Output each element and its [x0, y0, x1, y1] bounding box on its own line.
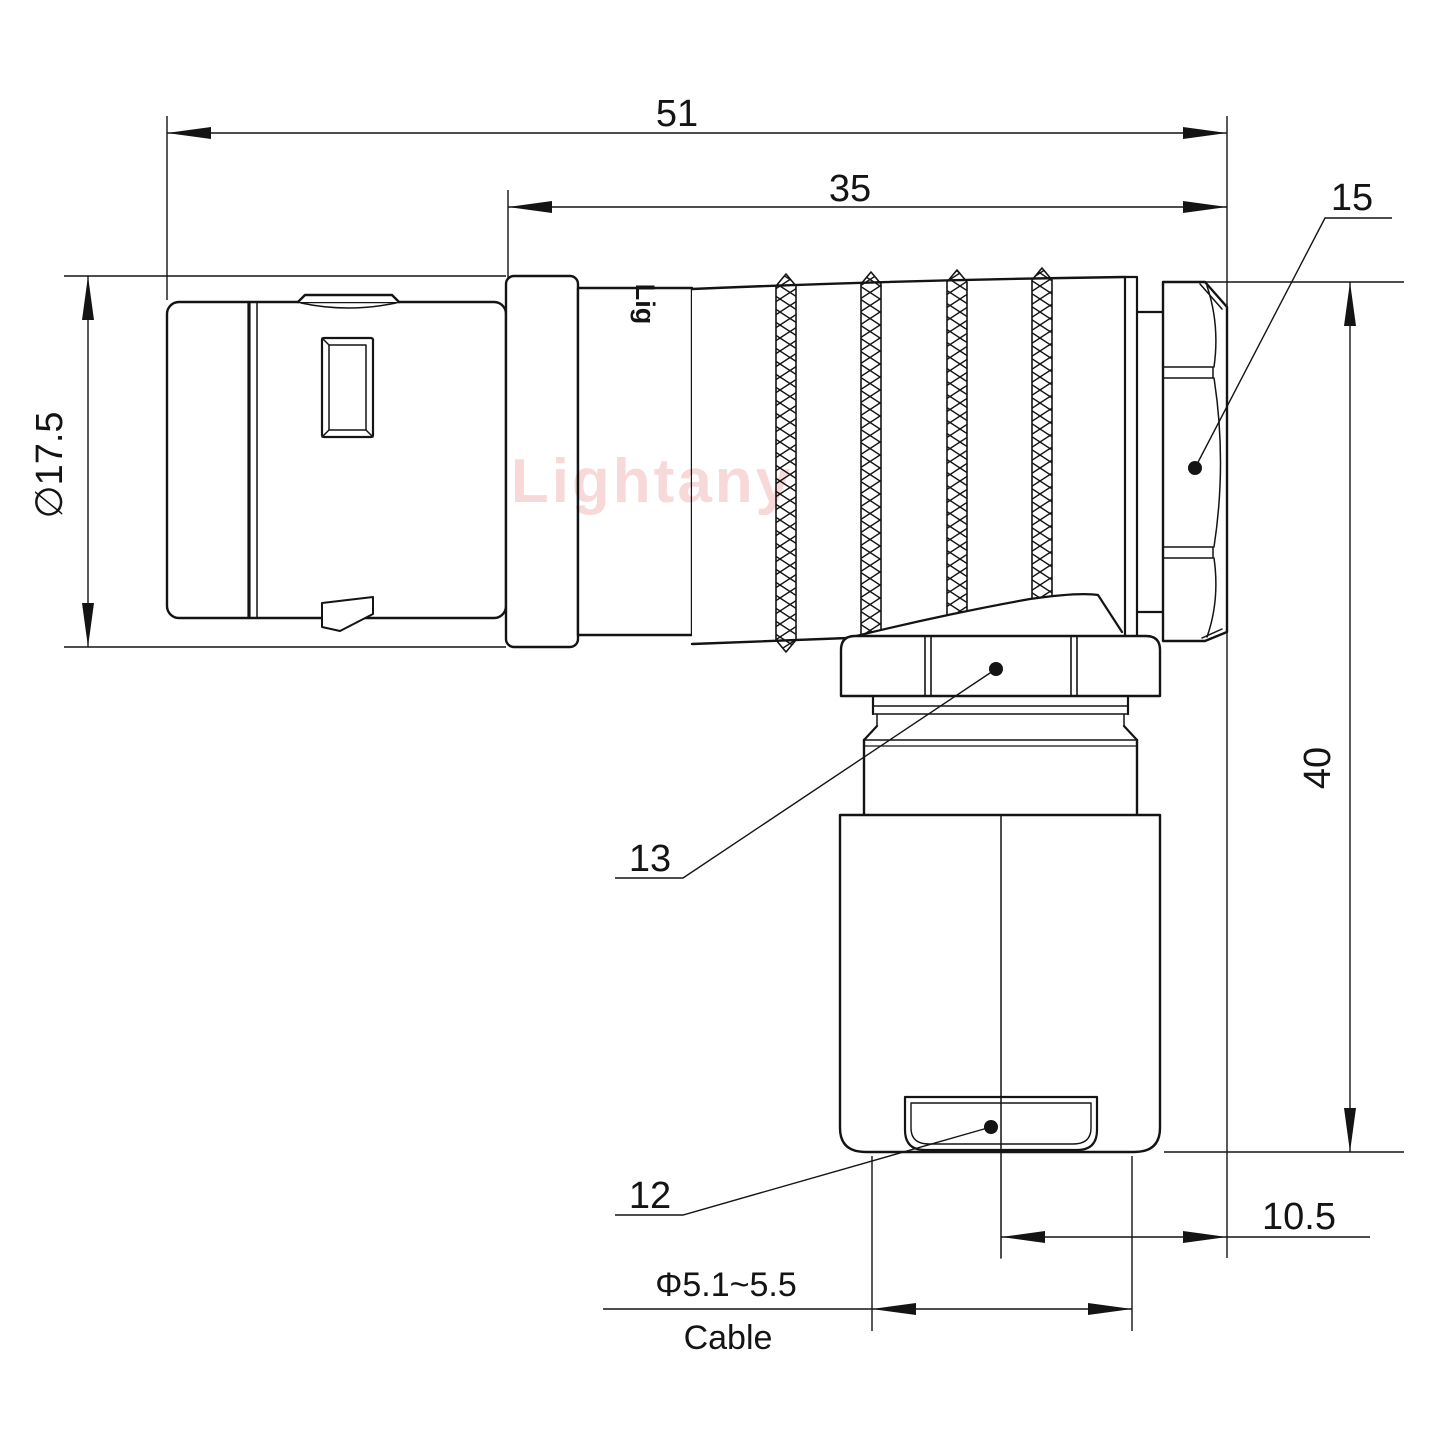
- knurl-band-3: [947, 270, 967, 652]
- arrow-17-bottom: [82, 603, 94, 647]
- dim40-text: 40: [1297, 747, 1339, 789]
- leader12-dot: [984, 1120, 998, 1134]
- latch-tab: [322, 597, 373, 631]
- upper-cylinder: [864, 740, 1137, 815]
- dimension-layer: 51 35 ∅17.5 40 10.5 Φ5.1~5.5 Cable 15 13…: [29, 93, 1404, 1357]
- gland-neck: [864, 696, 1137, 740]
- latch-lip: [298, 295, 399, 302]
- arrow-cable-left: [872, 1303, 916, 1315]
- cable-word-text: Cable: [684, 1319, 773, 1357]
- part-geometry: Lig: [167, 268, 1227, 1258]
- front-shell: [167, 295, 506, 631]
- neck-sides: [873, 696, 1128, 714]
- arrow-35-right: [1183, 201, 1227, 213]
- arrow-51-left: [167, 127, 211, 139]
- dim105-text: 10.5: [1262, 1196, 1336, 1238]
- part-marking-text: Lig: [630, 284, 660, 325]
- arrow-40-top: [1344, 282, 1356, 326]
- dim51-text: 51: [656, 93, 698, 135]
- dimcable-text: Φ5.1~5.5: [655, 1266, 797, 1304]
- callout12-text: 12: [629, 1175, 671, 1217]
- watermark-text: Lightany: [511, 447, 793, 516]
- leader13-dot: [989, 662, 1003, 676]
- step-lines: [1137, 312, 1163, 612]
- arrow-105-right: [1183, 1231, 1227, 1243]
- knurl-band-4: [1032, 268, 1052, 652]
- callout15-text: 15: [1331, 177, 1373, 219]
- neck-flare: [864, 726, 1137, 740]
- drawing-sheet: Lig: [0, 0, 1440, 1440]
- arrow-cable-right: [1088, 1303, 1132, 1315]
- arrow-51-right: [1183, 127, 1227, 139]
- arrow-105-left: [1001, 1231, 1045, 1243]
- end-cap: [1125, 277, 1137, 646]
- leader15-dot: [1188, 461, 1202, 475]
- arrow-35-left: [508, 201, 552, 213]
- dim-cable: [603, 1156, 1132, 1331]
- arrow-40-bottom: [1344, 1108, 1356, 1152]
- connector-elbow-drawing: Lig: [0, 0, 1440, 1440]
- arrow-17-top: [82, 276, 94, 320]
- dim17-text: ∅17.5: [29, 411, 71, 518]
- dim35-text: 35: [829, 168, 871, 210]
- knurl-band-2: [861, 272, 881, 652]
- callout13-text: 13: [629, 838, 671, 880]
- upper-cylinder-sides: [864, 740, 1137, 815]
